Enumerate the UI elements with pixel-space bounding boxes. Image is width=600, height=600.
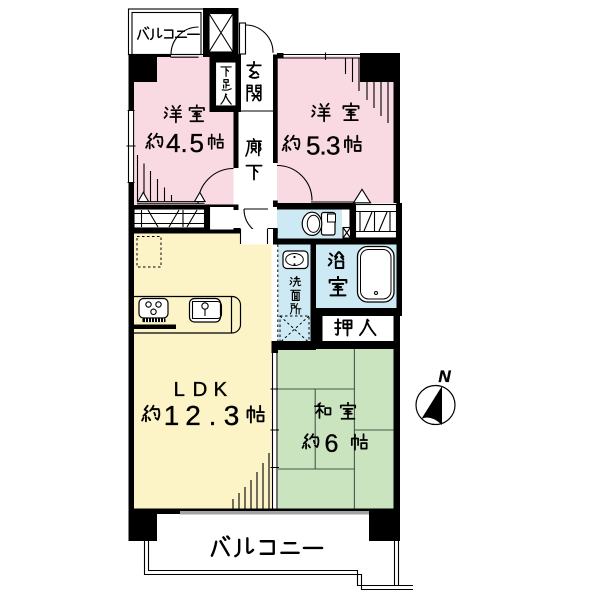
svg-text:.: . xyxy=(209,400,217,431)
svg-text:D: D xyxy=(193,378,208,401)
svg-text:3: 3 xyxy=(224,400,240,431)
svg-text:3: 3 xyxy=(326,131,340,161)
svg-text:L: L xyxy=(174,378,185,401)
svg-text:4: 4 xyxy=(166,128,180,158)
svg-text:K: K xyxy=(214,378,228,401)
svg-text:2: 2 xyxy=(185,400,201,431)
svg-text:6: 6 xyxy=(325,430,339,458)
svg-text:1: 1 xyxy=(164,400,180,431)
svg-text:5: 5 xyxy=(190,128,204,158)
svg-text:.: . xyxy=(181,128,188,158)
svg-text:5: 5 xyxy=(306,131,320,161)
svg-text:N: N xyxy=(438,367,451,386)
